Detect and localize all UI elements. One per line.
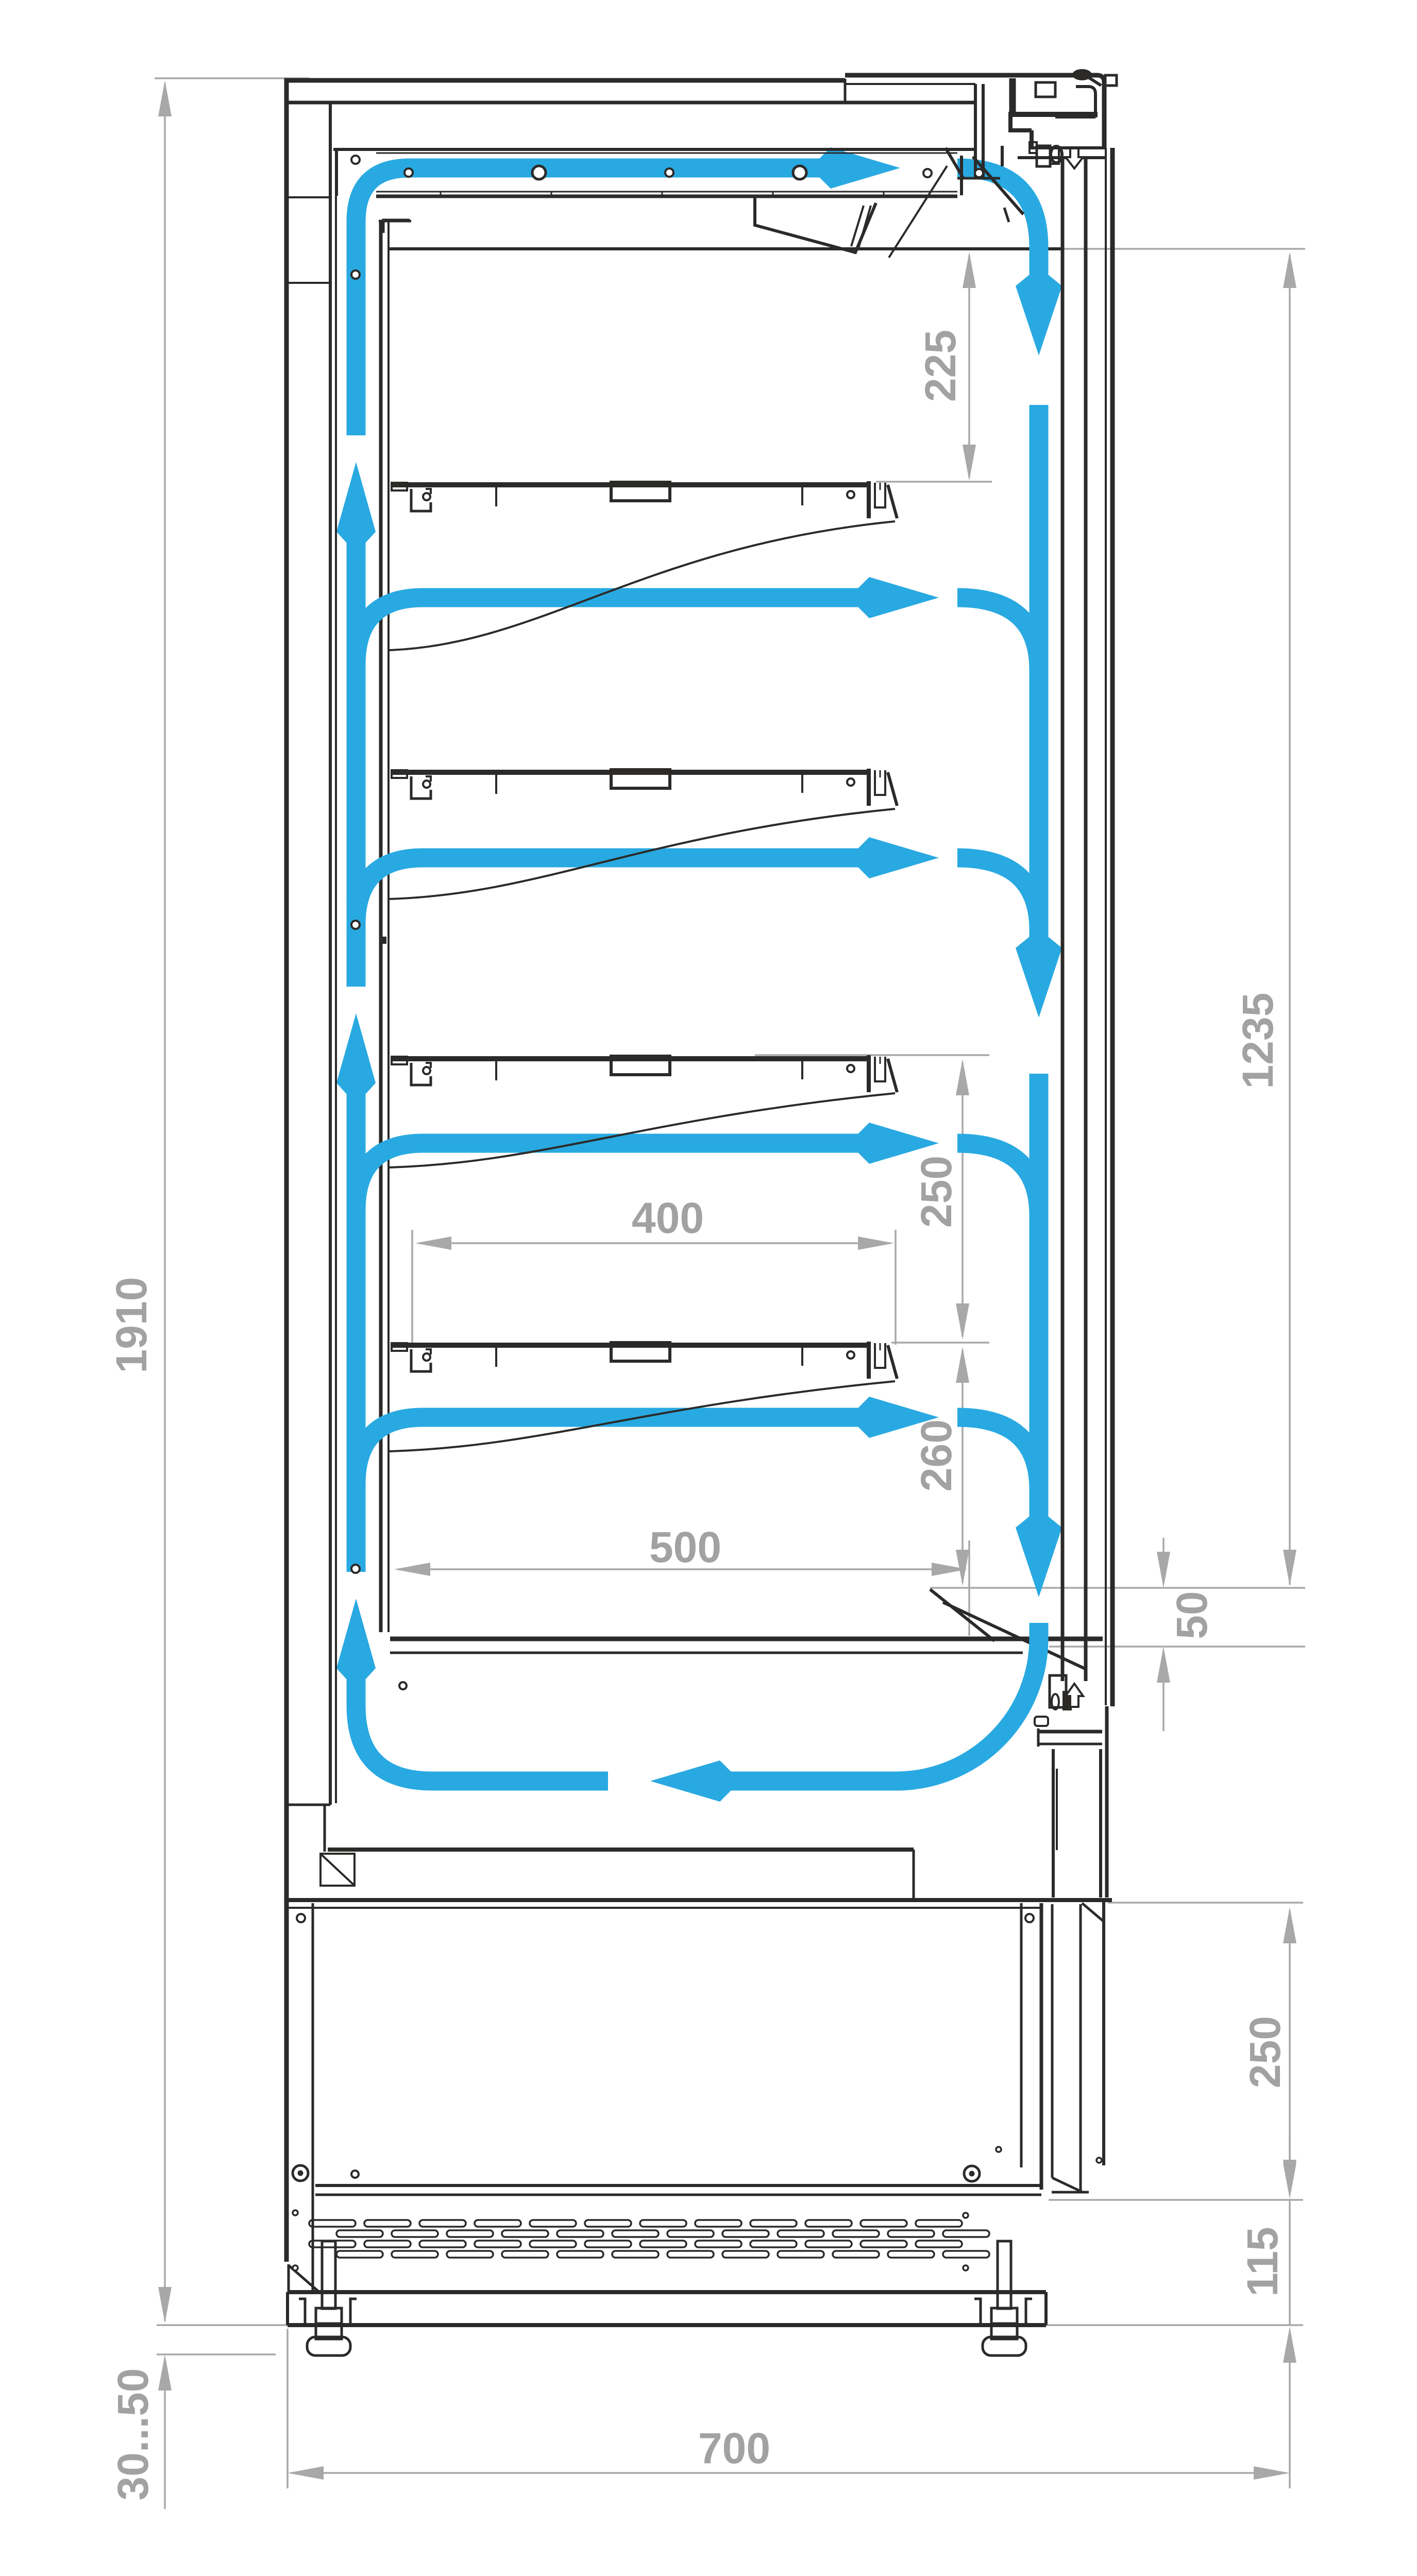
svg-text:400: 400 — [632, 1194, 704, 1242]
svg-text:30...50: 30...50 — [109, 2368, 157, 2501]
svg-text:250: 250 — [1241, 2016, 1289, 2088]
svg-text:1910: 1910 — [107, 1277, 156, 1374]
svg-text:50: 50 — [1168, 1591, 1216, 1639]
svg-text:500: 500 — [649, 1523, 721, 1571]
svg-text:250: 250 — [912, 1156, 960, 1228]
svg-text:1235: 1235 — [1234, 993, 1282, 1089]
svg-text:700: 700 — [698, 2424, 770, 2472]
svg-text:115: 115 — [1238, 2227, 1287, 2297]
svg-text:225: 225 — [916, 330, 965, 402]
svg-text:260: 260 — [912, 1419, 960, 1492]
